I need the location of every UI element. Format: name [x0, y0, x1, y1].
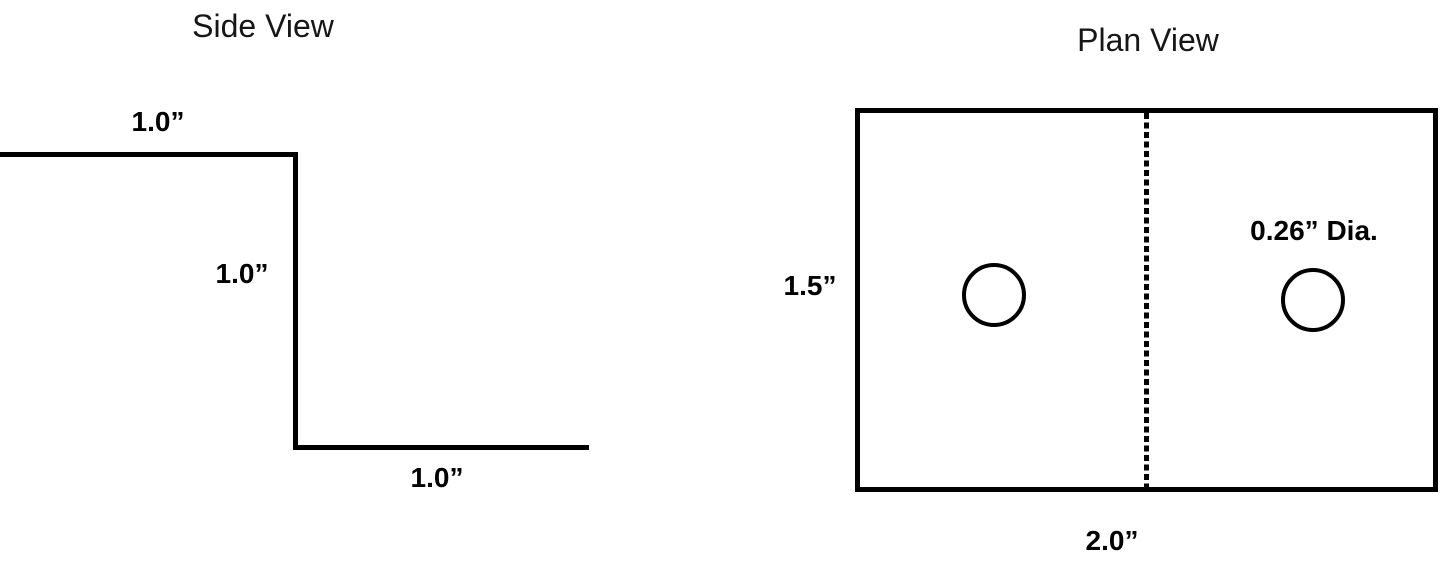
side-view-step-profile: [0, 0, 600, 520]
right-hole-circle: [1281, 268, 1345, 332]
plan-view-outline: [855, 108, 1438, 492]
side-step-height-dimension: 1.0”: [216, 260, 269, 288]
fold-centerline-dotted: [1144, 113, 1149, 487]
side-bottom-width-dimension: 1.0”: [411, 464, 464, 492]
engineering-drawing: Side View 1.0” 1.0” 1.0” Plan View 1.5” …: [0, 0, 1445, 568]
plan-width-dimension: 2.0”: [1086, 527, 1139, 555]
side-top-width-dimension: 1.0”: [132, 108, 185, 136]
step-profile-line: [0, 155, 589, 448]
plan-view-title: Plan View: [1077, 24, 1219, 56]
hole-diameter-label: 0.26” Dia.: [1250, 217, 1378, 245]
plan-height-dimension: 1.5”: [784, 272, 837, 300]
left-hole-circle: [962, 263, 1026, 327]
